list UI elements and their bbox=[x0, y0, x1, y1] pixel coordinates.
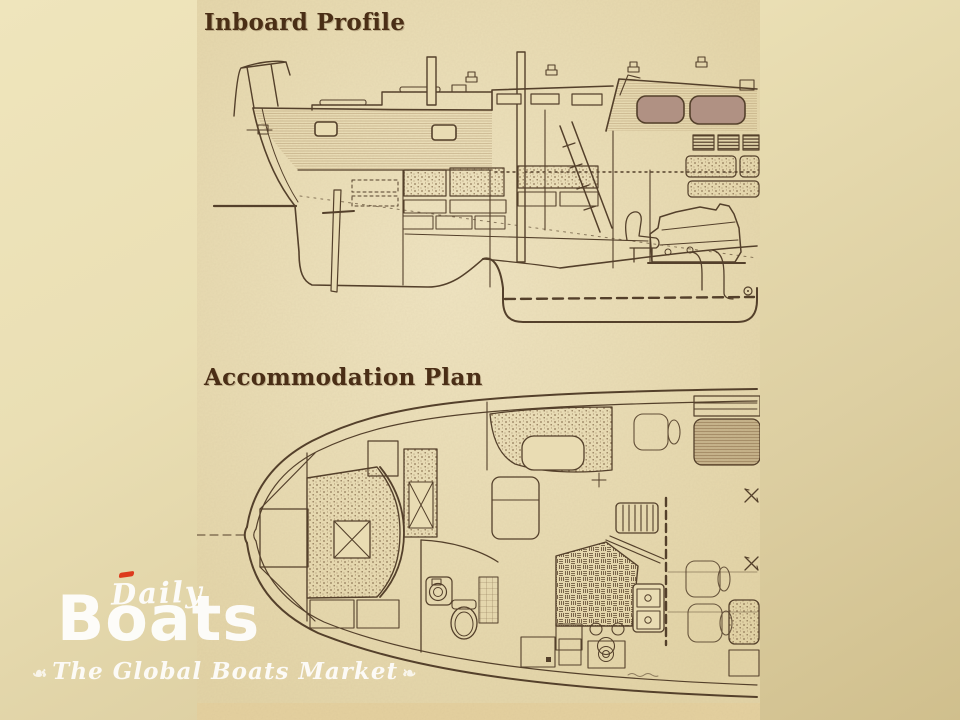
flourish-icon-left: ☙ bbox=[28, 664, 52, 684]
watermark-tagline-text: The Global Boats Market bbox=[52, 658, 398, 685]
accommodation-plan-title: Accommodation Plan bbox=[204, 364, 483, 391]
flourish-icon-right: ❧ bbox=[398, 664, 421, 684]
watermark-boats-text: Boats bbox=[57, 588, 260, 650]
watermark-tagline: ☙The Global Boats Market❧ bbox=[28, 658, 421, 685]
boat-listing-photo: { "figure": { "titles": { "profile": "In… bbox=[0, 0, 960, 720]
inboard-profile-title: Inboard Profile bbox=[204, 9, 405, 36]
